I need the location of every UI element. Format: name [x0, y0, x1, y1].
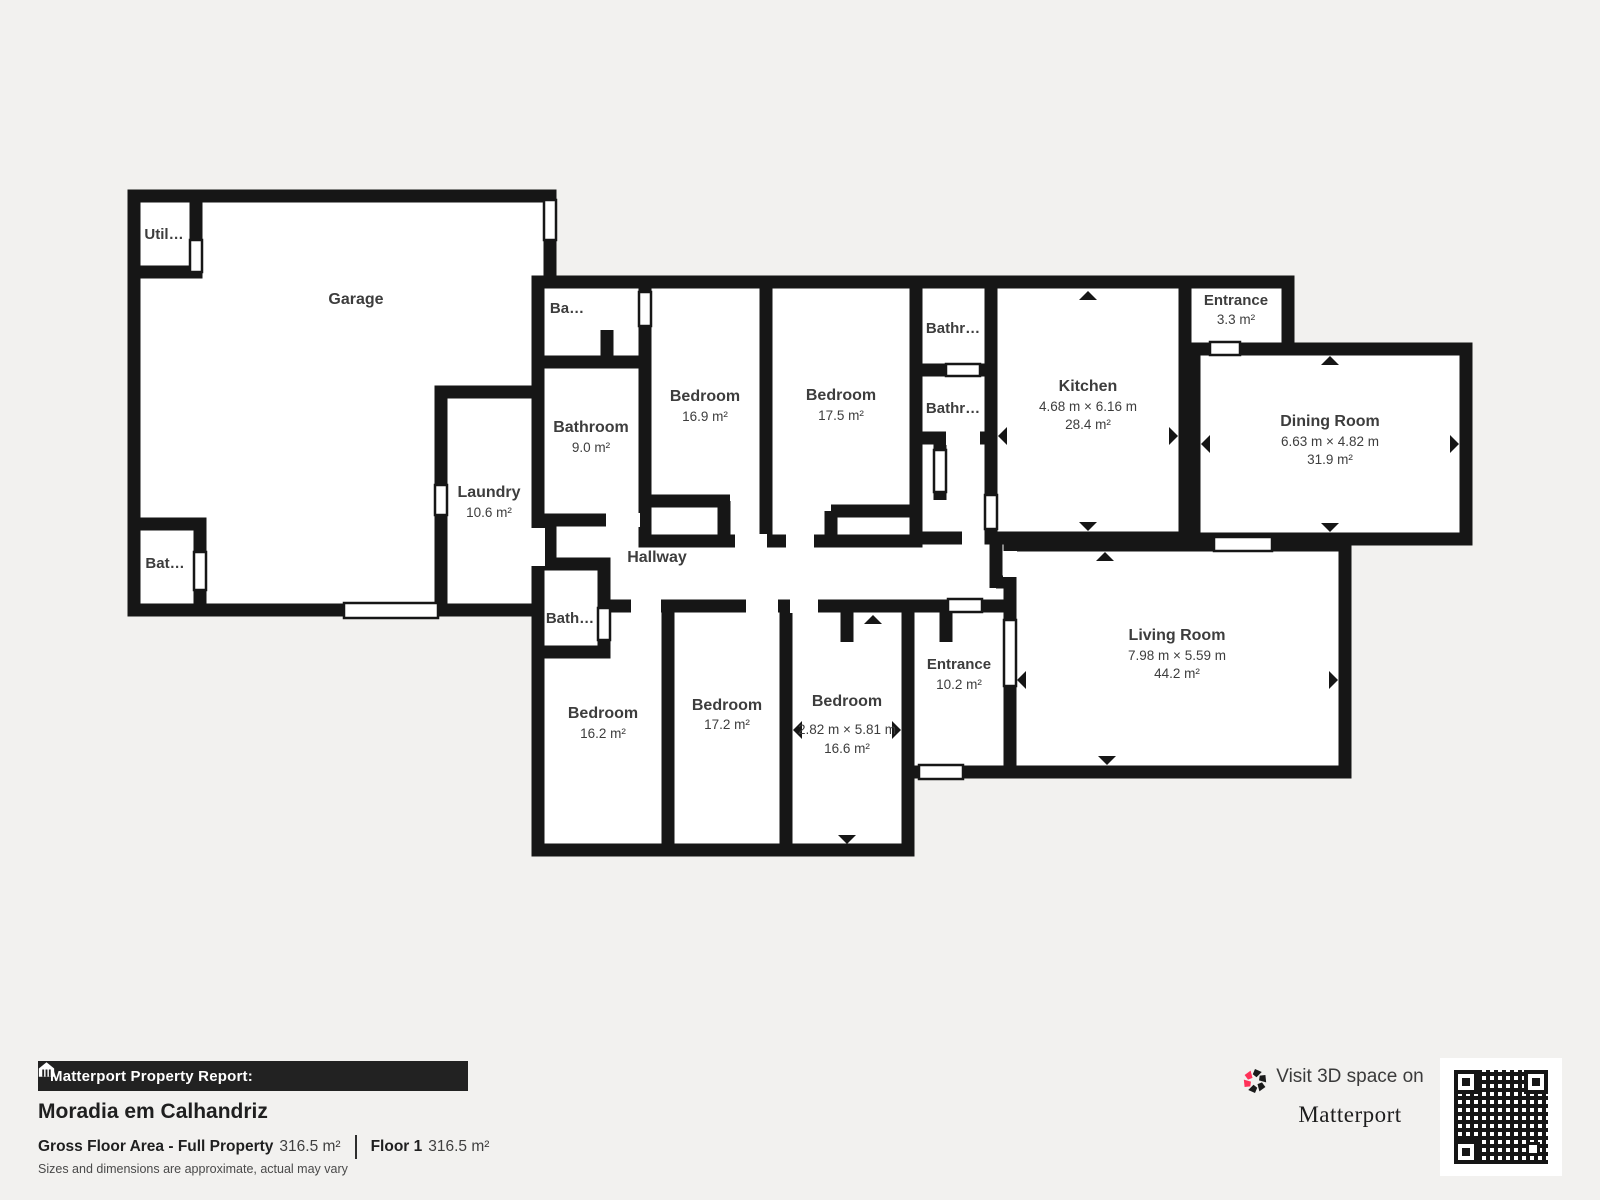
- report-header-label: Matterport Property Report:: [50, 1068, 253, 1085]
- room-laundry: [441, 392, 538, 610]
- label-entrance-main: Entrance: [927, 656, 991, 673]
- area-entrance-main: 10.2 m²: [936, 677, 982, 692]
- label-laundry: Laundry: [457, 484, 520, 501]
- floor1-label: Floor 1: [371, 1138, 423, 1156]
- entrance-small-door: [1210, 342, 1240, 355]
- label-bedroom-175: Bedroom: [806, 387, 876, 404]
- label-bathroom-lower: Bath…: [546, 610, 594, 627]
- bathroom-small-window: [639, 292, 651, 326]
- garage-window: [544, 200, 556, 240]
- qr-finder-top-right: [1524, 1070, 1548, 1094]
- label-bedroom-166: Bedroom: [812, 693, 882, 710]
- entrance-main-top-door: [948, 599, 982, 612]
- area-bedroom-172: 17.2 m²: [704, 717, 750, 732]
- dims-living: 7.98 m × 5.59 m: [1128, 648, 1226, 663]
- qr-alignment-square: [1526, 1142, 1540, 1156]
- gross-floor-area-value: 316.5 m²: [279, 1138, 340, 1156]
- floor-area-metrics: Gross Floor Area - Full Property 316.5 m…: [38, 1135, 489, 1159]
- qr-code: [1440, 1058, 1562, 1176]
- room-bathroom-small-top: [538, 282, 645, 362]
- area-bedroom-166: 16.6 m²: [824, 741, 870, 756]
- dims-dining: 6.63 m × 4.82 m: [1281, 434, 1379, 449]
- front-door: [919, 765, 963, 779]
- dims-bedroom-166: 2.82 m × 5.81 m: [798, 722, 896, 737]
- bathrooms-divider-window: [946, 364, 980, 376]
- kitchen-window: [985, 495, 997, 529]
- vestibule-door: [934, 450, 946, 492]
- label-bedroom-172: Bedroom: [692, 697, 762, 714]
- floor-plan: Garage Util… Bat… Laundry 10.6 m² Ba… Ba…: [0, 0, 1600, 1010]
- area-dining: 31.9 m²: [1307, 452, 1353, 467]
- visit-3d-text: Visit 3D space on: [1240, 1066, 1460, 1088]
- area-bedroom-175: 17.5 m²: [818, 408, 864, 423]
- utility-door: [190, 240, 202, 272]
- qr-pattern: [1454, 1070, 1548, 1164]
- label-bathroom-small-top: Ba…: [550, 300, 584, 317]
- house-icon: [38, 1061, 55, 1078]
- disclaimer-text: Sizes and dimensions are approximate, ac…: [38, 1162, 348, 1176]
- area-entrance-small: 3.3 m²: [1217, 312, 1256, 327]
- label-bedroom-169: Bedroom: [670, 388, 740, 405]
- area-living: 44.2 m²: [1154, 666, 1200, 681]
- area-kitchen: 28.4 m²: [1065, 417, 1111, 432]
- label-bathroom-main: Bathroom: [553, 419, 629, 436]
- label-dining: Dining Room: [1280, 413, 1380, 430]
- laundry-window: [435, 485, 447, 515]
- bathroom-garage-door: [194, 552, 206, 590]
- promo-block: Visit 3D space on Matterport: [1240, 1066, 1460, 1128]
- property-title: Moradia em Calhandriz: [38, 1100, 268, 1124]
- bathroom-lower-door: [598, 608, 610, 640]
- label-utility: Util…: [144, 226, 183, 243]
- report-header-bar: Matterport Property Report:: [38, 1061, 468, 1091]
- qr-finder-top-left: [1454, 1070, 1478, 1094]
- area-bedroom-162: 16.2 m²: [580, 726, 626, 741]
- floor1-value: 316.5 m²: [428, 1138, 489, 1156]
- dims-kitchen: 4.68 m × 6.16 m: [1039, 399, 1137, 414]
- label-living: Living Room: [1129, 627, 1226, 644]
- area-bedroom-169: 16.9 m²: [682, 409, 728, 424]
- matterport-wordmark: Matterport: [1298, 1102, 1401, 1128]
- matterport-logo-icon: [1240, 1066, 1270, 1096]
- label-bathroom-top-right: Bathr…: [926, 320, 980, 337]
- label-bedroom-162: Bedroom: [568, 705, 638, 722]
- qr-finder-bottom-left: [1454, 1140, 1478, 1164]
- label-bathroom-garage: Bat…: [145, 555, 184, 572]
- label-kitchen: Kitchen: [1059, 378, 1118, 395]
- label-garage: Garage: [328, 291, 383, 308]
- metrics-divider: [355, 1135, 357, 1159]
- area-laundry: 10.6 m²: [466, 505, 512, 520]
- label-hallway: Hallway: [627, 549, 687, 566]
- room-bathroom-lower: [538, 564, 604, 652]
- label-bathroom-mid-right: Bathr…: [926, 400, 980, 417]
- area-bathroom-main: 9.0 m²: [572, 440, 611, 455]
- entrance-living-door: [1004, 620, 1016, 686]
- garage-door: [344, 603, 438, 618]
- label-entrance-small: Entrance: [1204, 292, 1268, 309]
- dining-living-door: [1214, 537, 1272, 551]
- gross-floor-area-label: Gross Floor Area - Full Property: [38, 1138, 273, 1156]
